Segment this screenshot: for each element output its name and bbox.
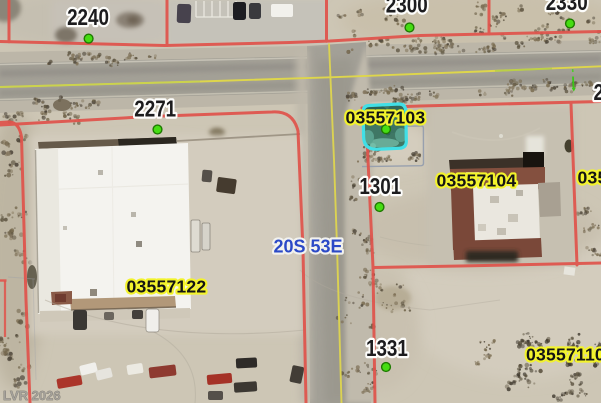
svg-text:LVR 2026: LVR 2026 (3, 388, 61, 403)
svg-text:0355: 0355 (578, 168, 601, 188)
svg-text:2331: 2331 (594, 80, 601, 105)
svg-text:03557104: 03557104 (437, 171, 517, 191)
svg-text:2300: 2300 (386, 0, 428, 18)
svg-text:1331: 1331 (366, 336, 408, 361)
svg-text:2240: 2240 (67, 5, 109, 30)
svg-text:2271: 2271 (134, 97, 176, 122)
svg-text:03557110: 03557110 (526, 345, 601, 365)
svg-text:1301: 1301 (359, 174, 401, 199)
svg-text:2330: 2330 (546, 0, 588, 15)
svg-text:03557103: 03557103 (346, 108, 426, 128)
svg-text:03557122: 03557122 (127, 277, 207, 297)
svg-text:20S 53E: 20S 53E (274, 236, 343, 256)
